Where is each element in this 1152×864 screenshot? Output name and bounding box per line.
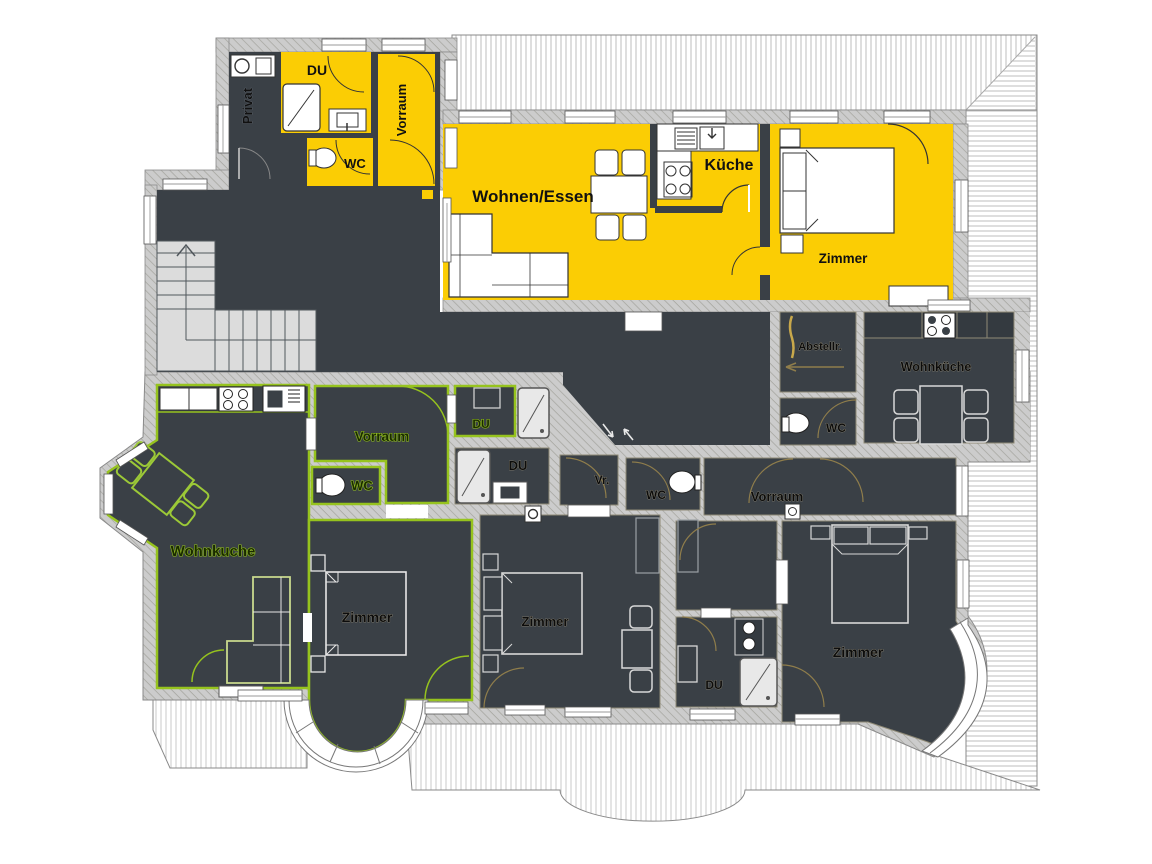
svg-text:Vorraum: Vorraum bbox=[394, 84, 409, 137]
svg-text:WC: WC bbox=[646, 488, 666, 502]
svg-text:Abstellr.: Abstellr. bbox=[798, 341, 841, 353]
svg-text:DU: DU bbox=[509, 458, 528, 473]
svg-text:DU: DU bbox=[307, 62, 327, 78]
svg-text:DU: DU bbox=[705, 678, 722, 692]
svg-text:Vr.: Vr. bbox=[595, 473, 610, 487]
svg-text:Zimmer: Zimmer bbox=[342, 609, 393, 625]
svg-text:Küche: Küche bbox=[705, 157, 754, 174]
svg-text:WC: WC bbox=[351, 478, 373, 493]
svg-text:Privat: Privat bbox=[240, 87, 255, 124]
svg-text:Wohnkuche: Wohnkuche bbox=[171, 543, 256, 560]
svg-text:DU: DU bbox=[472, 417, 489, 431]
svg-text:Zimmer: Zimmer bbox=[833, 644, 884, 660]
svg-text:Vorraum: Vorraum bbox=[355, 429, 410, 444]
svg-text:Zimmer: Zimmer bbox=[819, 251, 869, 266]
svg-text:WC: WC bbox=[344, 156, 366, 171]
svg-text:Wohnen/Essen: Wohnen/Essen bbox=[472, 187, 594, 206]
svg-text:Zimmer: Zimmer bbox=[522, 614, 569, 629]
svg-text:Vorraum: Vorraum bbox=[751, 489, 804, 504]
svg-text:WC: WC bbox=[826, 421, 846, 435]
svg-text:Wohnküche: Wohnküche bbox=[901, 360, 972, 374]
